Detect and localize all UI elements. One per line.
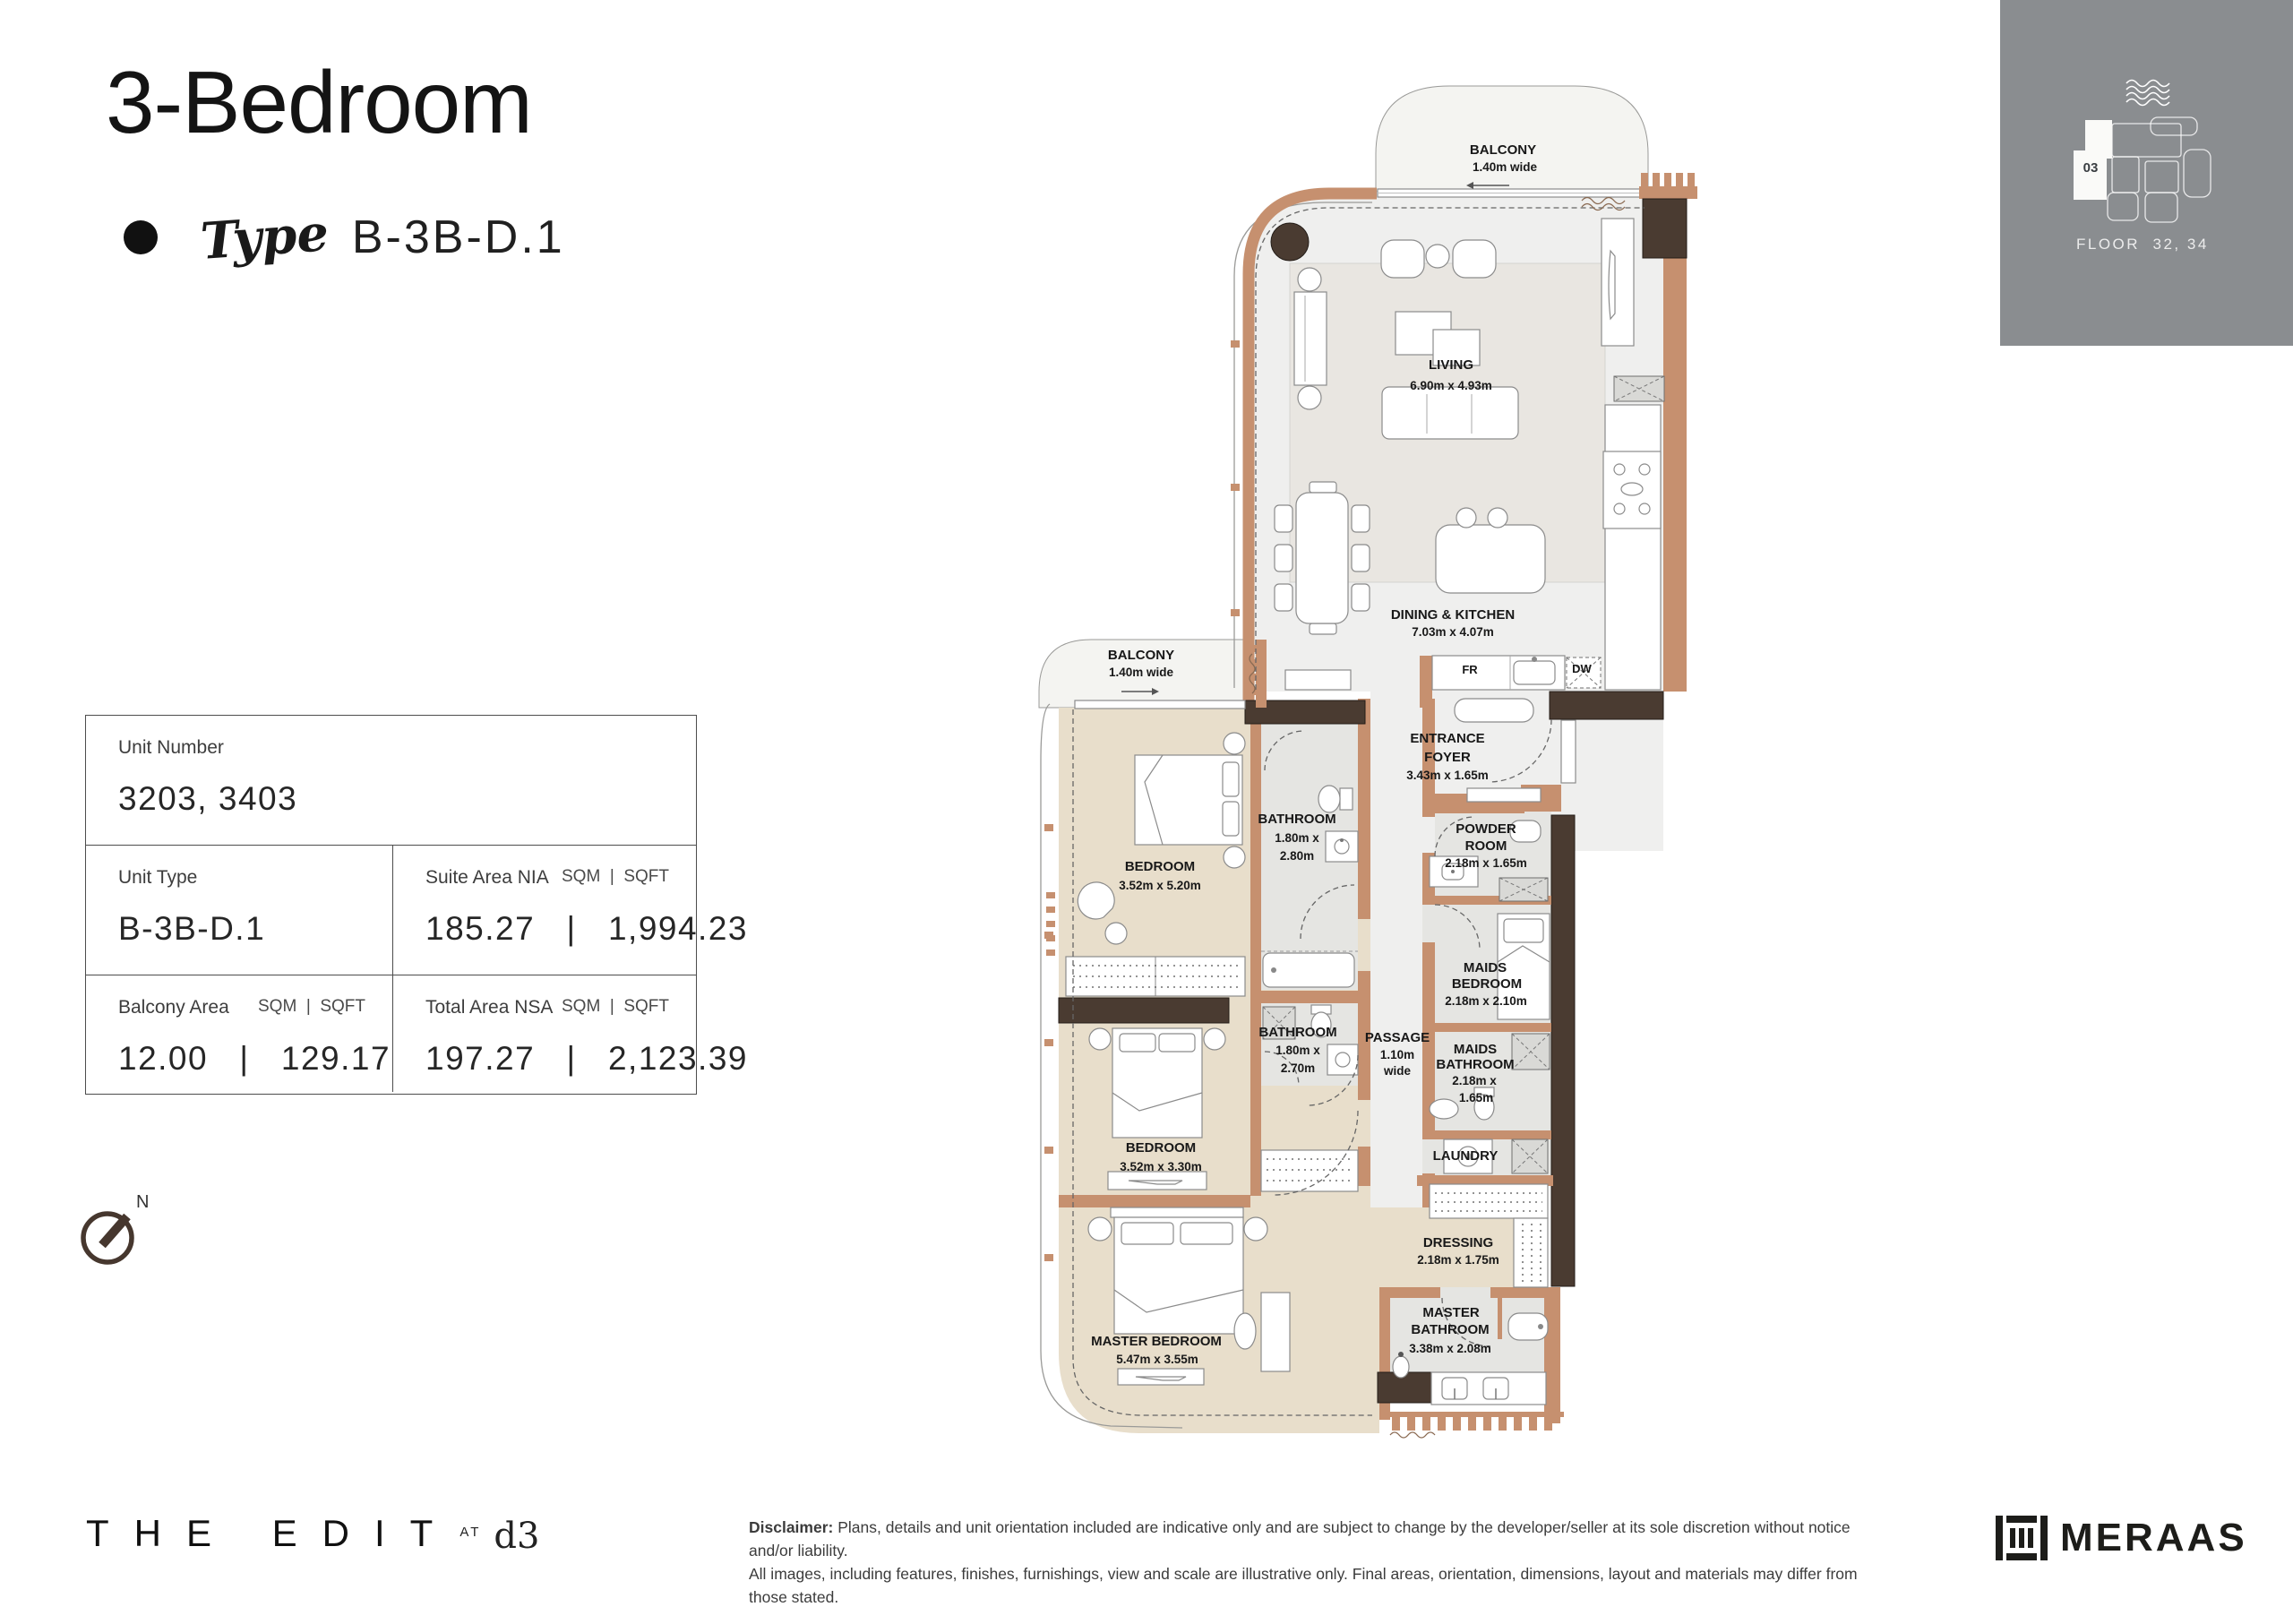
- unit-type-cell: Unit Type B-3B-D.1: [86, 846, 393, 975]
- cooktop: [1603, 451, 1661, 528]
- armchair: [1381, 240, 1424, 278]
- side-table: [1298, 268, 1321, 291]
- balcony-area-label: Balcony Area: [118, 997, 229, 1018]
- armchair: [1453, 240, 1496, 278]
- dishwasher-label: DW: [1572, 662, 1592, 675]
- unit-type-line: Type B-3B-D.1: [124, 208, 565, 267]
- unit-number-row: Unit Number 3203, 3403: [86, 716, 696, 846]
- foyer-console: [1467, 788, 1541, 802]
- compass-icon: N: [64, 1181, 181, 1288]
- unit-number-value: 3203, 3403: [118, 780, 297, 818]
- balcony-area-units: SQM | SQFT: [258, 997, 365, 1017]
- nightstand: [1089, 1028, 1111, 1050]
- maids-bathroom-dim-1: 2.18m x: [1452, 1074, 1497, 1087]
- bullet-icon: [124, 220, 158, 254]
- unit-type-value: B-3B-D.1: [118, 910, 265, 948]
- chair: [1234, 1313, 1256, 1349]
- d3-logo: d3: [494, 1516, 539, 1557]
- the-edit-wordmark: THE EDIT: [86, 1512, 458, 1555]
- living-label: LIVING: [1429, 357, 1473, 373]
- total-area-units: SQM | SQFT: [562, 997, 669, 1017]
- powder-room-dim: 2.18m x 1.65m: [1445, 856, 1527, 870]
- balcony-left-dim: 1.40m wide: [1109, 666, 1174, 679]
- maids-bedroom-label-2: BEDROOM: [1452, 976, 1522, 992]
- total-area-value: 197.27 | 2,123.39: [425, 1040, 748, 1078]
- entrance-foyer-dim: 3.43m x 1.65m: [1406, 769, 1489, 782]
- vanity: [1327, 1044, 1358, 1075]
- suite-area-cell: Suite Area NIA SQM | SQFT 185.27 | 1,994…: [393, 846, 696, 975]
- maids-bathroom-dim-2: 1.65m: [1459, 1091, 1493, 1104]
- dining-kitchen-label: DINING & KITCHEN: [1391, 607, 1515, 623]
- desk: [1261, 1293, 1290, 1371]
- bedroom2-header-wall: [1059, 998, 1229, 1023]
- wardrobe: [1514, 1218, 1548, 1287]
- balcony-left-label: BALCONY: [1108, 648, 1174, 663]
- balcony-area-value: 12.00 | 129.17: [118, 1040, 391, 1078]
- passage-label: PASSAGE: [1365, 1030, 1430, 1045]
- water-waves-icon: [2126, 81, 2169, 106]
- passage-dim-2: wide: [1383, 1064, 1411, 1078]
- wardrobe: [1261, 1150, 1358, 1191]
- total-area-label: Total Area NSA: [425, 997, 553, 1018]
- bedroom1-balcony-door: [1075, 700, 1245, 709]
- suite-area-label: Suite Area NIA: [425, 867, 549, 889]
- pillow: [1120, 1034, 1155, 1052]
- stool: [1456, 508, 1476, 528]
- disclaimer-line2: All images, including features, finishes…: [749, 1562, 1886, 1609]
- dining-table: [1296, 493, 1348, 623]
- bathroom1-dim-1: 1.80m x: [1275, 831, 1319, 845]
- nightstand: [1204, 1028, 1225, 1050]
- dressing-dim: 2.18m x 1.75m: [1417, 1253, 1499, 1267]
- kitchen-tall-units: [1605, 405, 1661, 690]
- bathroom1-label: BATHROOM: [1258, 812, 1335, 827]
- tv-unit: [1602, 219, 1634, 346]
- bathtub: [1263, 953, 1354, 987]
- nightstand: [1224, 846, 1245, 868]
- pillow: [1223, 762, 1239, 796]
- the-edit-logo: THE EDIT AT d3: [86, 1512, 539, 1555]
- floor-plan: BALCONY 1.40m wide LIVING 6.90m x 4.93m …: [1021, 72, 1729, 1505]
- side-table: [1426, 245, 1449, 268]
- pillow: [1223, 802, 1239, 836]
- disclaimer: Disclaimer: Plans, details and unit orie…: [749, 1516, 1886, 1609]
- fridge-label: FR: [1462, 663, 1478, 676]
- bedroom1-dim: 3.52m x 5.20m: [1119, 879, 1201, 892]
- kitchen-sink: [1514, 661, 1555, 684]
- bedroom2-dim: 3.52m x 3.30m: [1120, 1160, 1202, 1173]
- maids-bathroom-label-2: BATHROOM: [1436, 1057, 1514, 1072]
- bottom-terrace-teeth: [1392, 1417, 1552, 1431]
- at-label: AT: [459, 1525, 481, 1540]
- keyplan-units: 03: [2074, 117, 2211, 222]
- master-bathroom-label-1: MASTER: [1422, 1305, 1480, 1320]
- meraas-wordmark: MERAAS: [2060, 1516, 2247, 1560]
- powder-room-label-1: POWDER: [1456, 821, 1516, 837]
- toilet: [1393, 1356, 1409, 1378]
- pillow: [1504, 919, 1543, 942]
- pillow: [1159, 1034, 1195, 1052]
- master-bathroom-dim: 3.38m x 2.08m: [1409, 1342, 1491, 1355]
- floor-number-label: FLOOR 32, 34: [2076, 236, 2209, 253]
- entrance-step: [1561, 720, 1576, 783]
- building-keyplan: 03: [2000, 0, 2293, 346]
- console-shelf: [1285, 670, 1351, 690]
- round-column: [1271, 223, 1309, 261]
- maids-side-wall: [1551, 815, 1575, 1286]
- dining-kitchen-dim: 7.03m x 4.07m: [1412, 625, 1494, 639]
- maids-bathroom-label-1: MAIDS: [1454, 1042, 1497, 1057]
- bathroom2-dim-1: 1.80m x: [1275, 1044, 1320, 1057]
- floorplan-page: 3-Bedroom Type B-3B-D.1 03: [0, 0, 2293, 1624]
- suite-area-value: 185.27 | 1,994.23: [425, 910, 748, 948]
- unit-number-label: Unit Number: [118, 737, 224, 759]
- master-bathroom-label-2: BATHROOM: [1411, 1322, 1489, 1337]
- nightstand: [1088, 1217, 1112, 1241]
- laundry-label: LAUNDRY: [1433, 1148, 1499, 1164]
- kitchen-island: [1436, 525, 1545, 593]
- vanity: [1326, 831, 1358, 862]
- sofa: [1382, 387, 1518, 439]
- side-table: [1298, 386, 1321, 409]
- type-code: B-3B-D.1: [352, 211, 565, 264]
- living-dim: 6.90m x 4.93m: [1410, 379, 1492, 392]
- north-label: N: [136, 1192, 149, 1212]
- master-bedroom-label: MASTER BEDROOM: [1091, 1334, 1222, 1349]
- passage-dim-1: 1.10m: [1380, 1048, 1414, 1061]
- master-bedroom-dim: 5.47m x 3.55m: [1116, 1353, 1198, 1366]
- unit-type-label: Unit Type: [118, 867, 197, 889]
- entrance-foyer-label-1: ENTRANCE: [1410, 731, 1484, 746]
- cistern: [1340, 788, 1353, 810]
- balcony-top-label: BALCONY: [1470, 142, 1536, 158]
- headboard-panel: [1111, 1207, 1243, 1217]
- unit-03-number: 03: [2083, 160, 2099, 176]
- maids-bedroom-dim: 2.18m x 2.10m: [1445, 994, 1527, 1008]
- pillow: [1121, 1223, 1173, 1244]
- bench: [1294, 292, 1327, 385]
- bathroom2-dim-2: 2.70m: [1281, 1061, 1315, 1075]
- page-title: 3-Bedroom: [106, 52, 532, 153]
- structural-column: [1643, 199, 1687, 258]
- unit-info-table: Unit Number 3203, 3403 Unit Type B-3B-D.…: [85, 715, 697, 1095]
- type-script-label: Type: [199, 203, 331, 271]
- side-table: [1105, 923, 1127, 944]
- bathroom1-dim-2: 2.80m: [1280, 849, 1314, 863]
- disclaimer-line1: Plans, details and unit orientation incl…: [749, 1518, 1851, 1560]
- stool: [1488, 508, 1507, 528]
- basin: [1430, 1099, 1458, 1119]
- powder-room-label-2: ROOM: [1465, 838, 1507, 854]
- meraas-logo: MERAAS: [1996, 1512, 2247, 1564]
- maids-bedroom-label-1: MAIDS: [1464, 960, 1507, 975]
- suite-area-units: SQM | SQFT: [562, 867, 669, 887]
- wardrobe: [1430, 1184, 1548, 1218]
- floor-key-panel: 03 FLOOR 32, 34: [2000, 0, 2293, 346]
- nightstand: [1224, 733, 1245, 754]
- meraas-logo-icon: [1996, 1512, 2048, 1564]
- pillow: [1181, 1223, 1232, 1244]
- bedroom1-label: BEDROOM: [1125, 859, 1195, 874]
- total-area-cell: Total Area NSA SQM | SQFT 197.27 | 2,123…: [393, 975, 696, 1092]
- nightstand: [1244, 1217, 1267, 1241]
- disclaimer-label: Disclaimer:: [749, 1518, 833, 1536]
- toilet: [1318, 786, 1340, 812]
- entrance-foyer-label-2: FOYER: [1424, 750, 1471, 765]
- balcony-top-dim: 1.40m wide: [1473, 160, 1538, 174]
- dressing-label: DRESSING: [1423, 1235, 1493, 1250]
- foyer-bench: [1455, 699, 1533, 722]
- balcony-area-cell: Balcony Area SQM | SQFT 12.00 | 129.17: [86, 975, 393, 1092]
- bathroom2-label: BATHROOM: [1258, 1025, 1336, 1040]
- bedroom2-label: BEDROOM: [1126, 1140, 1196, 1156]
